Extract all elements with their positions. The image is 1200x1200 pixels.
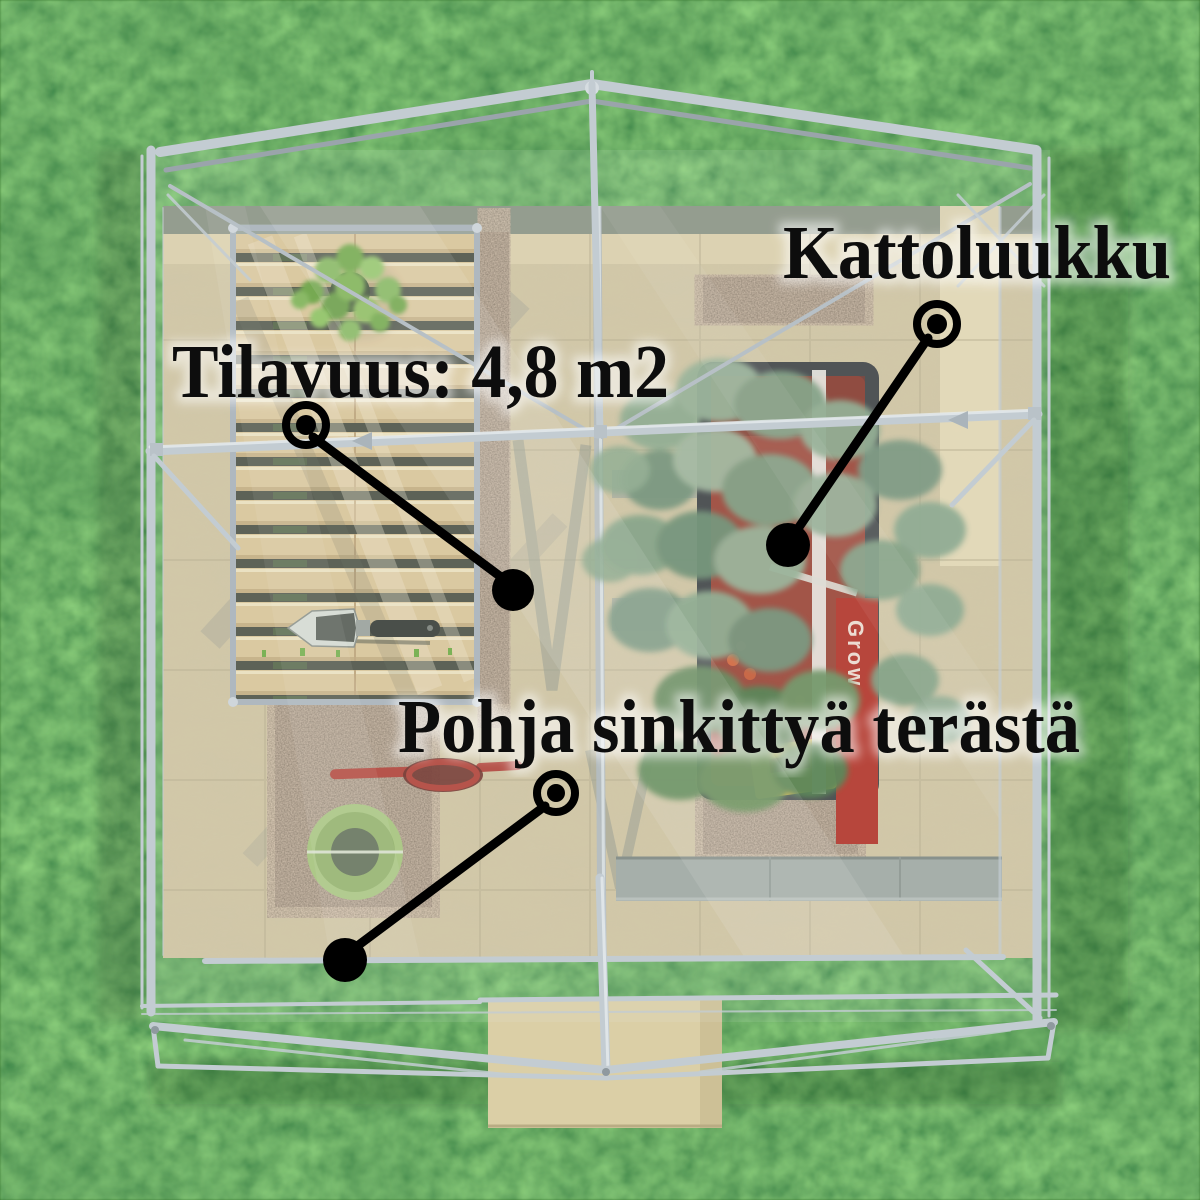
roof-hatch-ring-dot-icon <box>927 314 947 334</box>
volume-end-dot-icon <box>492 569 534 611</box>
roof-hatch-label: Kattoluukku <box>783 211 1171 295</box>
volume-ring-dot-icon <box>296 415 316 435</box>
base-label: Pohja sinkittyä terästä <box>398 685 1080 769</box>
roof-hatch-end-dot-icon <box>766 523 810 567</box>
product-image-greenhouse-top-view: Grow <box>0 0 1200 1200</box>
base-ring-dot-icon <box>547 784 565 802</box>
base-end-dot-icon <box>323 938 367 982</box>
volume-label: Tilavuus: 4,8 m2 <box>172 330 669 414</box>
